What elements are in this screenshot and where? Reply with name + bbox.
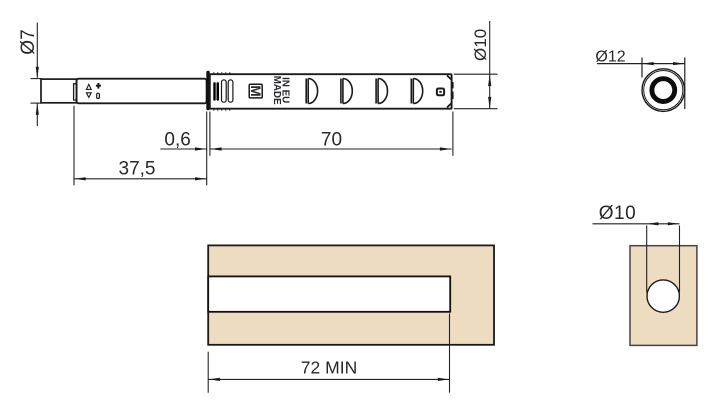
svg-text:Ø12: Ø12 xyxy=(595,49,625,66)
svg-text:70: 70 xyxy=(321,130,342,151)
svg-text:Ø10: Ø10 xyxy=(471,29,490,61)
svg-text:72 MIN: 72 MIN xyxy=(301,358,357,378)
svg-text:0,6: 0,6 xyxy=(164,130,190,151)
svg-text:IN EU: IN EU xyxy=(280,77,291,103)
svg-text:Ø10: Ø10 xyxy=(599,203,636,224)
svg-text:Ø7: Ø7 xyxy=(18,29,39,54)
svg-text:M: M xyxy=(248,85,263,96)
svg-text:37,5: 37,5 xyxy=(119,159,156,180)
